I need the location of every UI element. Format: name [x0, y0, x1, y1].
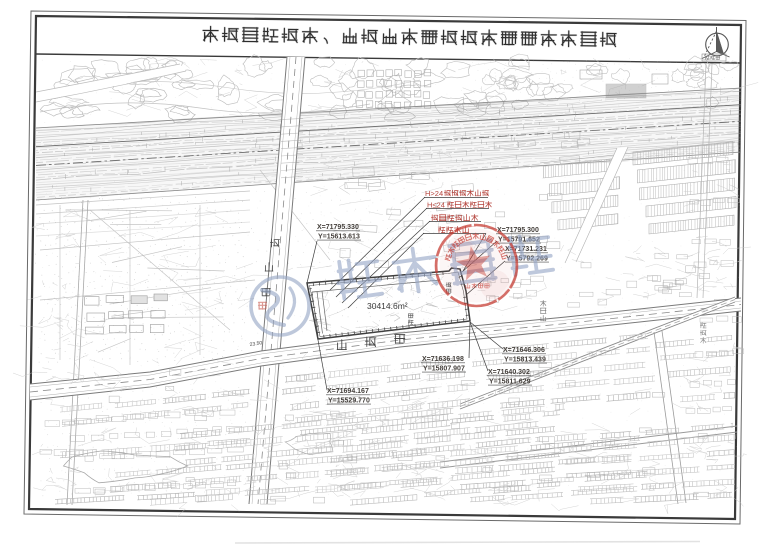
svg-text:Y=15807.907: Y=15807.907: [423, 365, 465, 372]
svg-text:H≤24: H≤24: [427, 201, 445, 210]
svg-text:X=71694.167: X=71694.167: [327, 388, 369, 395]
svg-text:X=71646.306: X=71646.306: [503, 347, 545, 354]
svg-text:30414.6m²: 30414.6m²: [367, 301, 408, 311]
svg-text:X=71795.300: X=71795.300: [497, 227, 539, 234]
svg-text:H>24: H>24: [425, 189, 443, 198]
svg-text:Y=15613.613: Y=15613.613: [318, 233, 360, 240]
svg-text:X=71640.302: X=71640.302: [488, 369, 530, 376]
svg-text:Y=15813.439: Y=15813.439: [504, 356, 546, 363]
svg-text:X=71636.198: X=71636.198: [422, 356, 464, 363]
svg-text:X=71795.330: X=71795.330: [317, 224, 359, 231]
svg-text:Y=15811.629: Y=15811.629: [489, 378, 531, 385]
svg-text:Y=15529.770: Y=15529.770: [328, 397, 370, 404]
